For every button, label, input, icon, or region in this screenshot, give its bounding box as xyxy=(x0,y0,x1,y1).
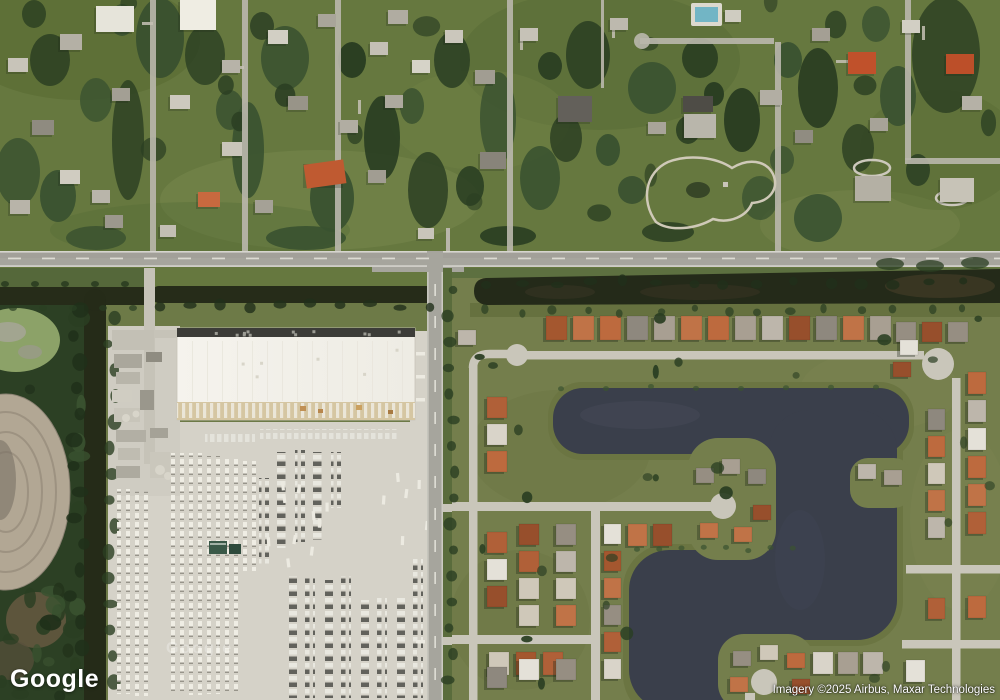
house xyxy=(683,96,713,112)
house xyxy=(487,532,507,553)
truck xyxy=(267,537,271,546)
house xyxy=(858,464,876,479)
car-row xyxy=(323,580,333,698)
house xyxy=(222,142,242,156)
house xyxy=(556,605,576,626)
house xyxy=(855,176,891,201)
house xyxy=(268,30,288,44)
house xyxy=(902,20,920,33)
house xyxy=(760,90,782,105)
house xyxy=(600,316,621,340)
house xyxy=(32,120,54,135)
house xyxy=(760,645,778,660)
truck xyxy=(416,352,425,356)
house xyxy=(816,316,837,340)
house xyxy=(653,524,672,546)
driveway xyxy=(358,100,361,114)
truck xyxy=(416,375,425,379)
trailer-row xyxy=(189,453,202,695)
house xyxy=(725,10,741,22)
house xyxy=(556,524,576,545)
house xyxy=(812,28,830,41)
house xyxy=(573,316,594,340)
trailer-row xyxy=(135,491,148,696)
house xyxy=(628,524,647,546)
house xyxy=(519,659,539,680)
house xyxy=(370,42,388,55)
house xyxy=(368,170,386,183)
house xyxy=(556,551,576,572)
house xyxy=(160,225,176,237)
house xyxy=(520,28,538,41)
house xyxy=(487,559,507,580)
house xyxy=(762,316,783,340)
house xyxy=(928,517,945,538)
house xyxy=(458,330,476,345)
house xyxy=(412,60,430,73)
house xyxy=(962,96,982,110)
house xyxy=(519,524,539,545)
house xyxy=(733,651,751,666)
car-row xyxy=(341,576,351,698)
house xyxy=(546,316,567,340)
house xyxy=(730,677,748,692)
house xyxy=(848,52,876,74)
house xyxy=(734,527,752,542)
truck xyxy=(318,519,321,528)
house xyxy=(928,463,945,484)
house xyxy=(968,456,986,478)
house xyxy=(92,190,110,203)
house xyxy=(418,228,434,239)
street xyxy=(905,158,1000,164)
house xyxy=(722,459,740,474)
house xyxy=(445,30,463,43)
car-row xyxy=(260,429,398,439)
car-row xyxy=(287,576,297,698)
house xyxy=(480,152,506,169)
house xyxy=(170,95,190,109)
car-row xyxy=(305,578,315,698)
house xyxy=(922,322,942,342)
house xyxy=(60,34,82,50)
car-row xyxy=(413,558,423,698)
street xyxy=(242,0,248,253)
house xyxy=(519,605,539,626)
trailer-row xyxy=(225,459,238,693)
house xyxy=(385,95,403,108)
house xyxy=(928,490,945,511)
house xyxy=(610,18,628,30)
trailer-row xyxy=(117,489,130,694)
house xyxy=(968,428,986,450)
truck xyxy=(416,398,425,402)
car-row xyxy=(205,434,255,444)
truck xyxy=(416,640,425,644)
house xyxy=(487,586,507,607)
house xyxy=(906,660,925,682)
street xyxy=(775,42,781,253)
house xyxy=(968,372,986,394)
house xyxy=(940,178,974,202)
house xyxy=(789,316,810,340)
house xyxy=(708,316,729,340)
house xyxy=(487,667,507,688)
satellite-map-canvas[interactable]: Google Google Imagery ©2025 Airbus, Maxa… xyxy=(0,0,1000,700)
house xyxy=(558,96,592,122)
house xyxy=(893,362,911,377)
swimming-pool xyxy=(691,3,722,26)
house xyxy=(487,424,507,445)
house xyxy=(813,652,833,674)
street xyxy=(601,0,604,88)
house xyxy=(684,114,716,138)
street xyxy=(640,38,774,44)
street xyxy=(150,0,156,253)
house xyxy=(870,118,888,131)
suburban-area-north xyxy=(0,0,1000,260)
house xyxy=(968,596,986,618)
house xyxy=(487,451,507,472)
house xyxy=(753,505,771,520)
car-row xyxy=(377,598,387,698)
google-logo[interactable]: Google xyxy=(10,665,99,694)
house xyxy=(696,468,714,483)
house xyxy=(604,632,621,652)
house xyxy=(475,70,495,84)
driveway xyxy=(922,26,925,40)
house xyxy=(10,200,30,214)
house xyxy=(105,215,123,228)
house xyxy=(556,659,576,680)
house xyxy=(787,653,805,668)
trailer-row xyxy=(207,456,220,694)
car-row xyxy=(359,600,369,698)
trailer-row xyxy=(243,461,256,571)
house xyxy=(946,54,974,74)
house xyxy=(968,484,986,506)
house xyxy=(60,170,80,184)
house xyxy=(627,316,648,340)
house xyxy=(928,598,945,619)
house xyxy=(222,60,240,73)
house xyxy=(948,322,968,342)
house xyxy=(968,512,986,534)
satellite-imagery: Google xyxy=(0,0,1000,700)
house xyxy=(863,652,883,674)
house xyxy=(968,400,986,422)
house xyxy=(604,578,621,598)
house xyxy=(255,200,273,213)
house xyxy=(648,122,666,134)
car-row xyxy=(295,450,305,542)
house xyxy=(318,14,336,27)
truck xyxy=(417,480,420,489)
car-row xyxy=(259,478,269,564)
house xyxy=(487,397,507,418)
house xyxy=(388,10,408,24)
house xyxy=(900,340,918,355)
house xyxy=(700,523,718,538)
house xyxy=(8,58,28,72)
house xyxy=(519,578,539,599)
warehouse-building xyxy=(177,328,415,420)
house xyxy=(838,652,858,674)
house xyxy=(604,524,621,544)
street xyxy=(507,0,513,253)
house xyxy=(928,409,945,430)
house xyxy=(604,659,621,679)
trailer-row xyxy=(171,453,184,693)
house xyxy=(843,316,864,340)
truck xyxy=(325,503,328,512)
house xyxy=(681,316,702,340)
house xyxy=(884,470,902,485)
google-watermark: Google xyxy=(166,640,233,657)
house xyxy=(112,88,130,101)
house xyxy=(519,551,539,572)
driveway xyxy=(142,22,153,25)
house xyxy=(748,469,766,484)
car-row xyxy=(395,596,405,698)
truck xyxy=(382,495,386,504)
house xyxy=(556,578,576,599)
house xyxy=(180,0,216,30)
house xyxy=(896,322,916,342)
imagery-attribution: Imagery ©2025 Airbus, Maxar Technologies xyxy=(773,684,995,696)
house xyxy=(795,130,813,143)
house xyxy=(288,96,308,110)
truck xyxy=(401,536,405,545)
house xyxy=(340,120,358,133)
house xyxy=(928,436,945,457)
house xyxy=(198,192,220,207)
house xyxy=(735,316,756,340)
car-row xyxy=(331,452,341,508)
house xyxy=(96,6,134,32)
